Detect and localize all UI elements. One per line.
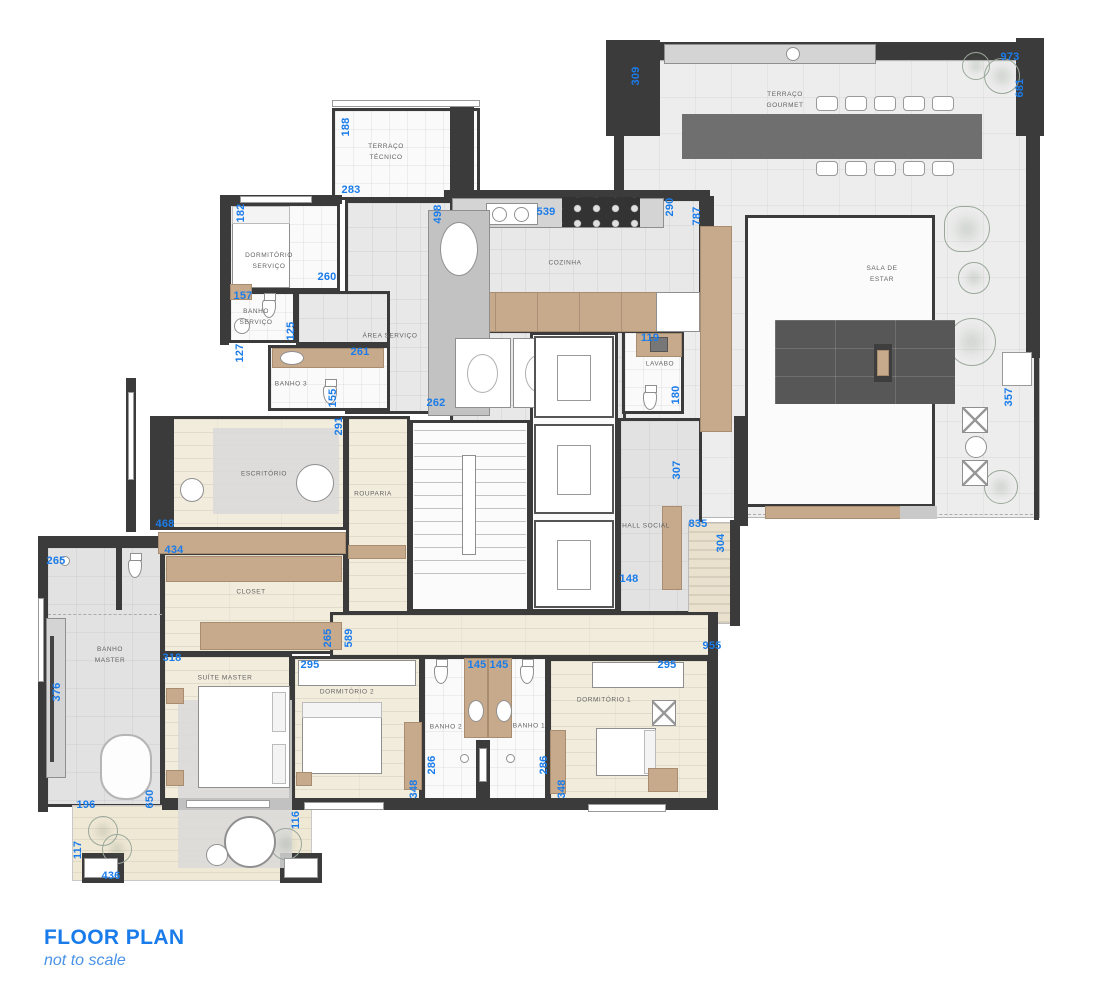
dimension-label: 307 (671, 461, 683, 480)
fridge (656, 292, 700, 332)
bed-pillow (272, 692, 286, 732)
wall (734, 416, 748, 526)
wall (1026, 58, 1040, 358)
dimension-label: 283 (342, 184, 361, 196)
dimension-label: 196 (77, 799, 96, 811)
dimension-label: 436 (102, 870, 121, 882)
rouparia-floor (346, 416, 410, 614)
dimension-label: 180 (670, 386, 682, 405)
gourmet-counter (664, 44, 876, 64)
dimension-label: 145 (490, 659, 509, 671)
window (186, 800, 270, 808)
dining-chair (845, 96, 867, 111)
dimension-label: 468 (156, 518, 175, 530)
wall (730, 520, 740, 626)
basin (280, 351, 304, 365)
gourmet-sink (786, 47, 800, 61)
wall (220, 195, 229, 345)
hall-social-label: HALL SOCIAL (622, 520, 670, 531)
bed-pillow (302, 702, 382, 718)
dining-chair (932, 96, 954, 111)
window (128, 392, 134, 480)
dimension-label: 376 (51, 683, 63, 702)
wall (606, 40, 660, 136)
banho-3-label: BANHO 3 (275, 378, 307, 389)
dimension-label: 973 (1001, 51, 1020, 63)
dimension-label: 125 (285, 322, 297, 341)
banho-master-label: BANHO MASTER (95, 644, 125, 666)
escritorio-label: ESCRITÓRIO (241, 468, 287, 479)
sink-bowl (514, 207, 529, 222)
dimension-label: 188 (340, 118, 352, 137)
wall (38, 536, 166, 546)
dimension-label: 498 (432, 205, 444, 224)
stair-rail (462, 455, 476, 555)
dining-chair (932, 161, 954, 176)
corredor-floor (330, 612, 718, 658)
rouparia-cabinet (348, 545, 406, 559)
dimension-label: 835 (689, 518, 708, 530)
dormitorio-servico-label: DORMITÓRIO SERVIÇO (245, 250, 293, 272)
tv-wall (152, 418, 174, 528)
sink-bowl (492, 207, 507, 222)
dining-chair (874, 161, 896, 176)
area-servico-label: ÁREA SERVIÇO (363, 330, 418, 341)
side-table (962, 460, 988, 486)
dimension-label: 348 (556, 780, 568, 799)
wall (450, 106, 474, 202)
window (332, 100, 480, 107)
terraco-tecnico-label: TERRAÇO TÉCNICO (368, 141, 404, 163)
sofa (775, 320, 955, 404)
nightstand (166, 688, 184, 704)
dimension-label: 265 (322, 629, 334, 648)
dimension-label: 357 (1003, 388, 1015, 407)
dining-table (682, 114, 982, 159)
window (240, 196, 312, 203)
dimension-label: 148 (620, 573, 639, 585)
sill-step (900, 506, 937, 519)
plant (948, 318, 996, 366)
shower-head (460, 754, 469, 763)
terraco-gourmet-label: TERRAÇO GOURMET (766, 89, 803, 111)
hall-bench (662, 506, 682, 590)
bed-pillow (272, 744, 286, 784)
dimension-label: 295 (301, 659, 320, 671)
title-block: FLOOR PLAN not to scale (44, 926, 185, 970)
dimension-label: 434 (165, 544, 184, 556)
dining-chair (816, 161, 838, 176)
dimension-label: 119 (641, 332, 659, 344)
banho-2-label: BANHO 2 (430, 721, 462, 732)
desk-chair (180, 478, 204, 502)
window (588, 804, 666, 812)
dimension-label: 787 (691, 207, 703, 226)
dimension-label: 955 (703, 640, 722, 652)
window (284, 858, 318, 878)
dimension-label: 116 (290, 811, 302, 829)
dimension-label: 291 (333, 417, 345, 436)
dimension-label: 589 (343, 629, 355, 648)
dimension-label: 295 (658, 659, 677, 671)
page-title: FLOOR PLAN (44, 926, 185, 950)
jacuzzi (224, 816, 276, 868)
dining-chair (845, 161, 867, 176)
elevator (534, 336, 614, 418)
shelf-cabinet (158, 532, 346, 554)
round-table (965, 436, 987, 458)
elevator (534, 424, 614, 514)
floor-plan-canvas: FLOOR PLAN not to scale TERRAÇO GOURMETS… (0, 0, 1099, 1000)
suite-master-label: SUÍTE MASTER (198, 672, 253, 683)
dimension-label: 182 (235, 204, 247, 223)
hall-entrada-floor (688, 522, 736, 624)
dimension-label: 261 (351, 346, 370, 358)
plant (984, 470, 1018, 504)
dimension-label: 304 (715, 534, 727, 553)
terrace-door (1002, 352, 1032, 386)
dining-chair (903, 96, 925, 111)
dimension-label: 286 (538, 756, 550, 775)
dimension-label: 290 (664, 198, 676, 217)
banho-1-label: BANHO 1 (513, 720, 545, 731)
dining-chair (816, 96, 838, 111)
cozinha-label: COZINHA (548, 257, 581, 268)
dining-chair (874, 96, 896, 111)
laundry-sink (440, 222, 478, 276)
nightstand (166, 770, 184, 786)
lavabo-label: LAVABO (646, 358, 674, 369)
dimension-label: 348 (408, 780, 420, 799)
dimension-label: 117 (72, 841, 84, 859)
closet-island (200, 622, 342, 650)
basin (468, 700, 484, 722)
elevator (534, 520, 614, 608)
dimension-label: 681 (1014, 79, 1026, 98)
shower-niche (479, 748, 487, 782)
dormitorio-2-label: DORMITÓRIO 2 (320, 686, 374, 697)
dimension-label: 539 (537, 206, 556, 218)
closet-label: CLOSET (236, 586, 265, 597)
window (38, 598, 44, 682)
dimension-label: 262 (427, 397, 446, 409)
shower-glass (48, 614, 162, 615)
dimension-label: 145 (468, 659, 487, 671)
wall (702, 196, 714, 228)
dimension-label: 157 (234, 290, 253, 302)
closet-wardrobe (166, 556, 342, 582)
shower-head (506, 754, 515, 763)
armchair (296, 464, 334, 502)
wall (1034, 358, 1039, 520)
page-subtitle: not to scale (44, 952, 185, 970)
dimension-label: 260 (318, 271, 337, 283)
side-table-round (206, 844, 228, 866)
dimension-label: 318 (163, 652, 182, 664)
desk (648, 768, 678, 792)
plant (958, 262, 990, 294)
dimension-label: 155 (327, 389, 339, 408)
dimension-label: 265 (47, 555, 66, 567)
dimension-label: 309 (630, 67, 642, 86)
tall-cabinet (700, 226, 732, 432)
basin (496, 700, 512, 722)
nightstand (296, 772, 312, 786)
side-table (962, 407, 988, 433)
dimension-label: 650 (144, 790, 156, 809)
sala-de-estar-label: SALA DE ESTAR (867, 263, 898, 285)
cooktop (562, 197, 640, 227)
dining-chair (903, 161, 925, 176)
dormitorio-1-label: DORMITÓRIO 1 (577, 694, 631, 705)
window (304, 802, 384, 810)
coffee-table (877, 350, 889, 376)
banho-servico-label: BANHO SERVIÇO (240, 306, 273, 328)
dimension-label: 127 (234, 344, 246, 363)
washer (455, 338, 511, 408)
dimension-label: 286 (426, 756, 438, 775)
desk-chair (652, 700, 676, 726)
rouparia-label: ROUPARIA (354, 488, 392, 499)
wc-divider (116, 546, 122, 610)
banho-1-floor (0, 0, 1, 1)
